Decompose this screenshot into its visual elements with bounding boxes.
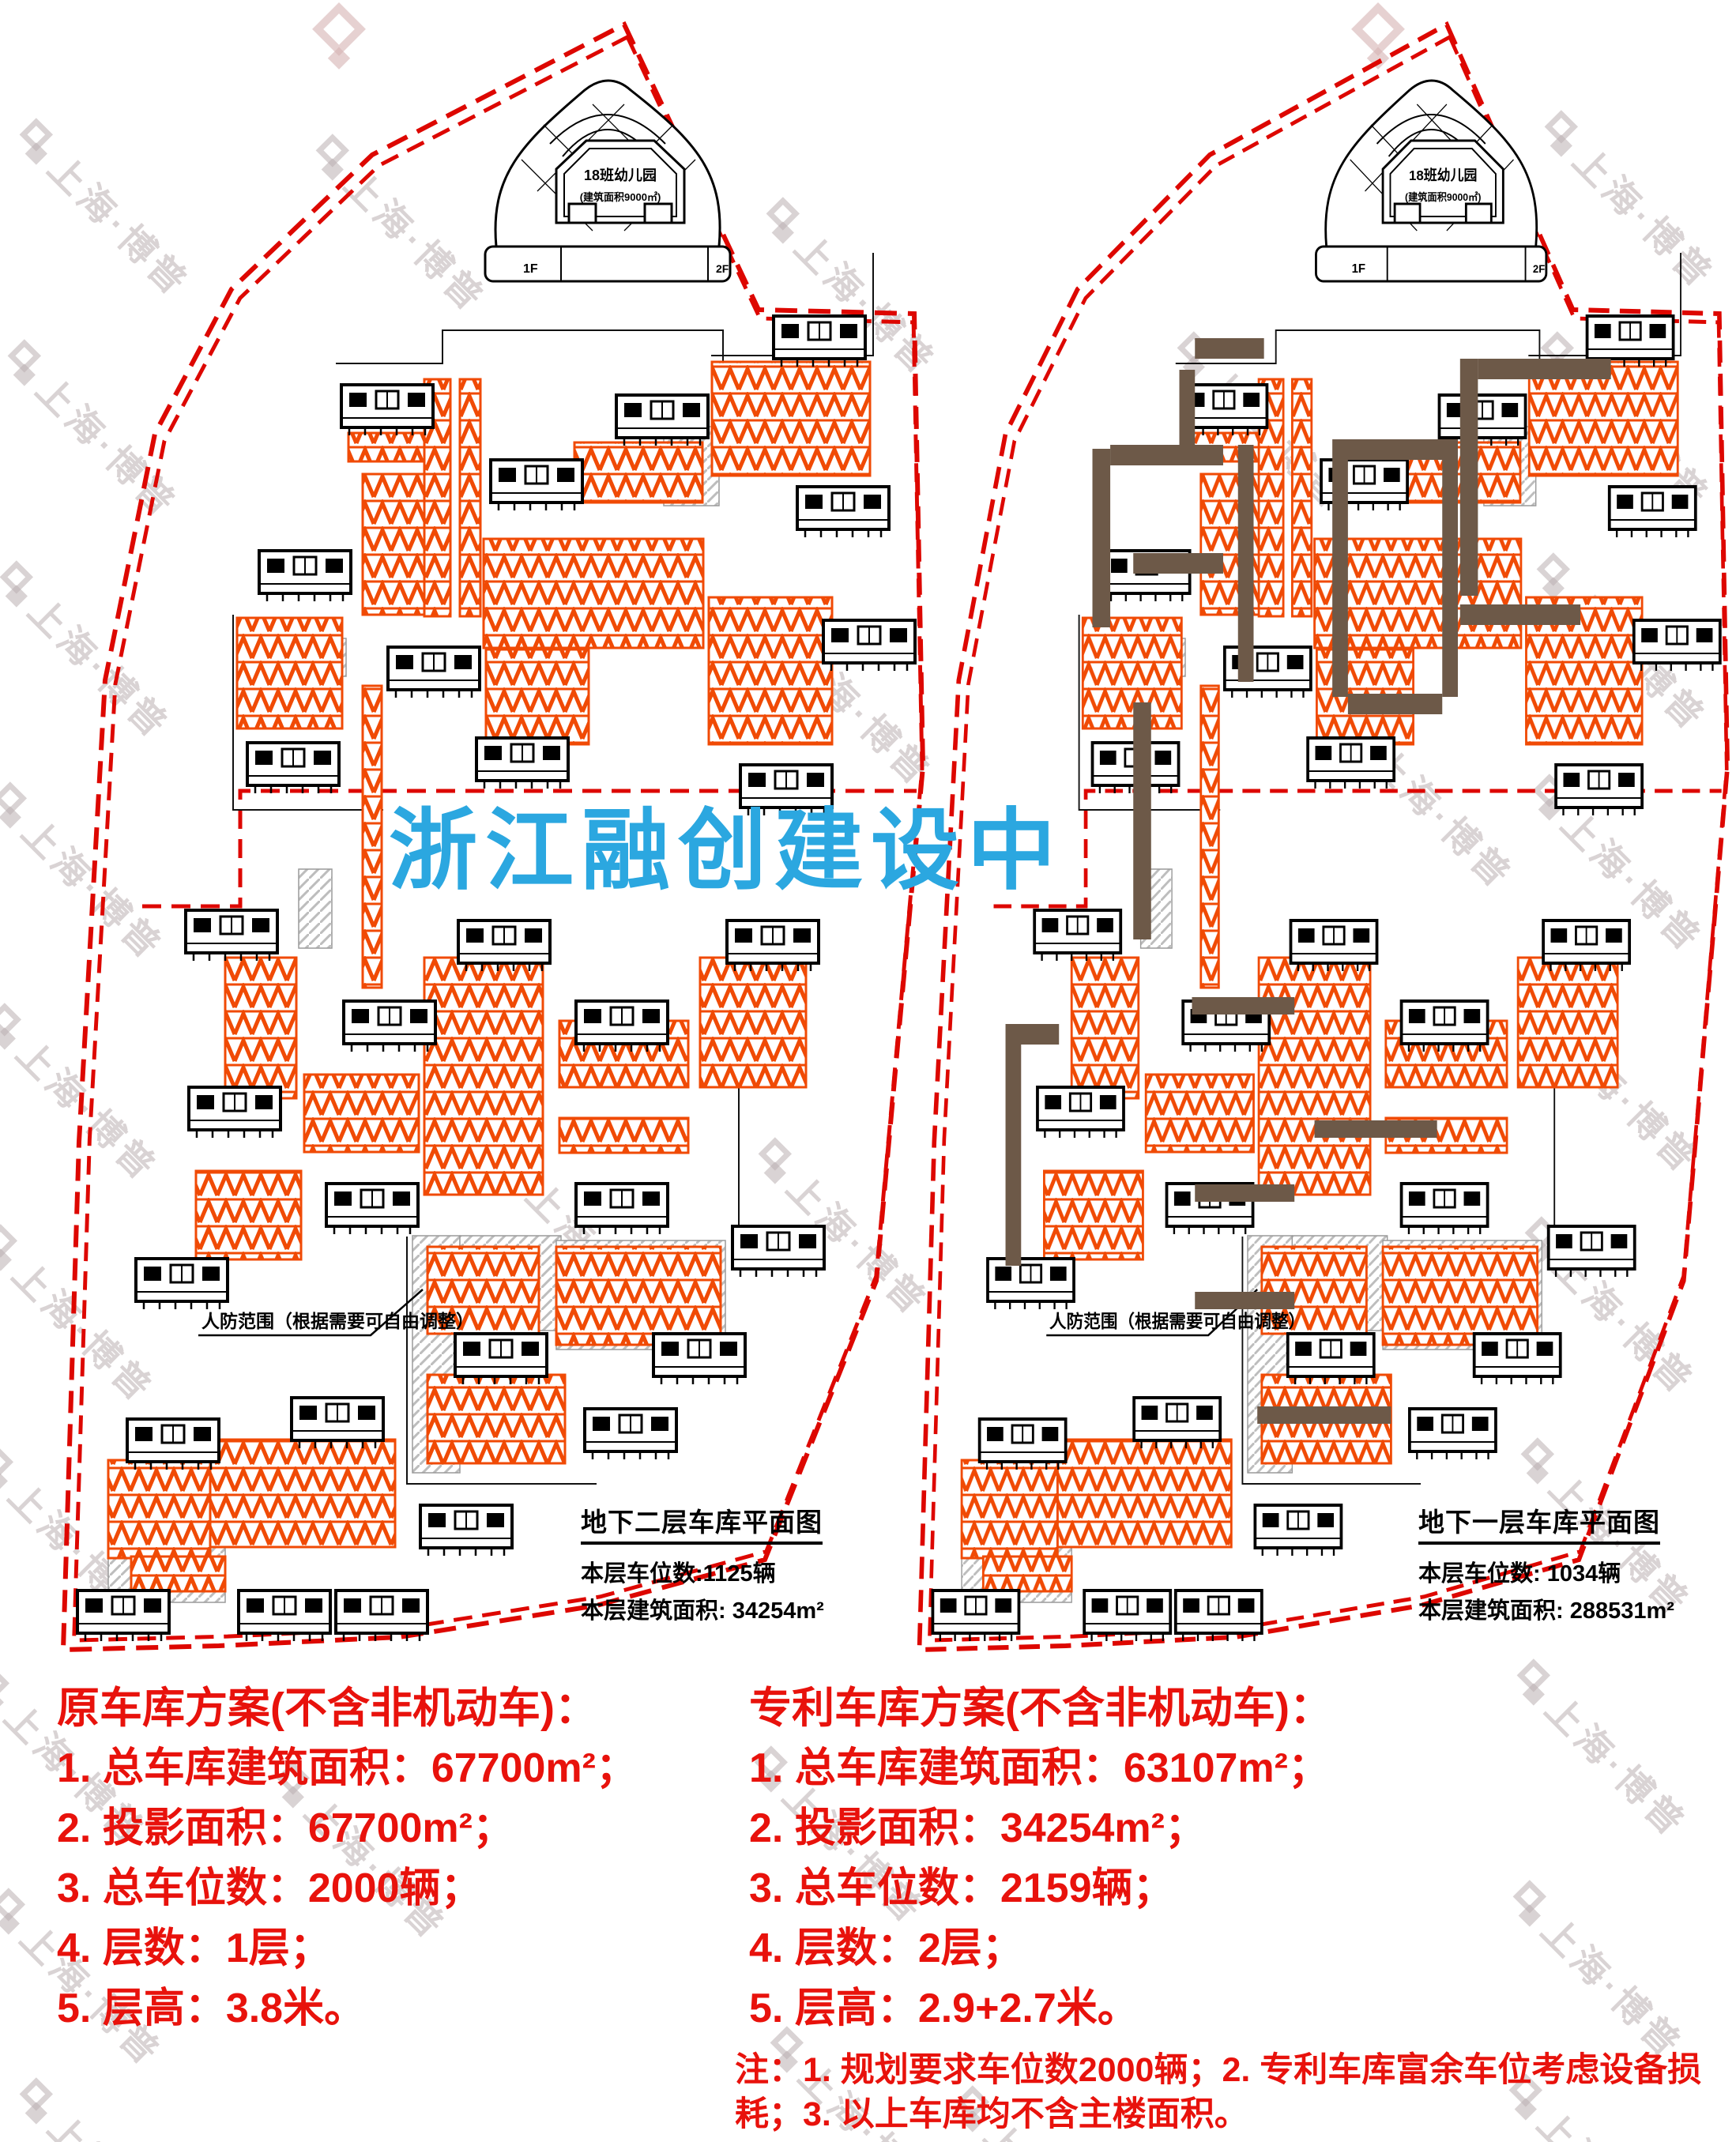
right-plan-stat-area: 本层建筑面积: 288531m² <box>1418 1592 1679 1625</box>
scheme-item: 1. 总车库建筑面积：67700m²； <box>57 1738 637 1798</box>
patent-scheme-block: 专利车库方案(不含非机动车)： 1. 总车库建筑面积：63107m²； 2. 投… <box>749 1678 1332 2038</box>
right-plan-title: 地下一层车库平面图 <box>1418 1501 1660 1545</box>
scheme-item: 1. 总车库建筑面积：63107m²； <box>749 1738 1332 1798</box>
scheme-item: 4. 层数：1层； <box>57 1918 637 1978</box>
left-plan-title: 地下二层车库平面图 <box>581 1501 823 1545</box>
scheme-item: 3. 总车位数：2159辆； <box>749 1858 1332 1918</box>
original-scheme-heading: 原车库方案(不含非机动车)： <box>57 1678 637 1738</box>
original-scheme-list: 1. 总车库建筑面积：67700m²； 2. 投影面积：67700m²； 3. … <box>57 1738 637 2038</box>
patent-scheme-heading: 专利车库方案(不含非机动车)： <box>749 1678 1332 1738</box>
scheme-item: 5. 层高：3.8米。 <box>57 1978 637 2038</box>
right-plan-infobox: 地下一层车库平面图 本层车位数: 1034辆 本层建筑面积: 288531m² <box>1418 1501 1679 1625</box>
scheme-item: 4. 层数：2层； <box>749 1918 1332 1978</box>
scheme-item: 2. 投影面积：67700m²； <box>57 1798 637 1858</box>
scheme-item: 2. 投影面积：34254m²； <box>749 1798 1332 1858</box>
footnote: 注：1. 规划要求车位数2000辆；2. 专利车库富余车位考虑设备损耗；3. 以… <box>735 2048 1707 2136</box>
status-overlay-text: 浙江融创建设中 <box>389 779 1064 907</box>
original-scheme-block: 原车库方案(不含非机动车)： 1. 总车库建筑面积：67700m²； 2. 投影… <box>57 1678 637 2038</box>
left-plan-infobox: 地下二层车库平面图 本层车位数:1125辆 本层建筑面积: 34254m² <box>581 1501 842 1625</box>
drawing-canvas: 上海·博普上海·博普上海·博普上海·博普上海·博普上海·博普上海·博普上海·博普… <box>0 0 1736 2142</box>
left-plan-stat-spaces: 本层车位数:1125辆 <box>581 1555 842 1588</box>
scheme-item: 3. 总车位数：2000辆； <box>57 1858 637 1918</box>
right-plan-stat-spaces: 本层车位数: 1034辆 <box>1418 1555 1679 1588</box>
patent-scheme-list: 1. 总车库建筑面积：63107m²； 2. 投影面积：34254m²； 3. … <box>749 1738 1332 2038</box>
left-plan-stat-area: 本层建筑面积: 34254m² <box>581 1592 842 1625</box>
scheme-item: 5. 层高：2.9+2.7米。 <box>749 1978 1332 2038</box>
